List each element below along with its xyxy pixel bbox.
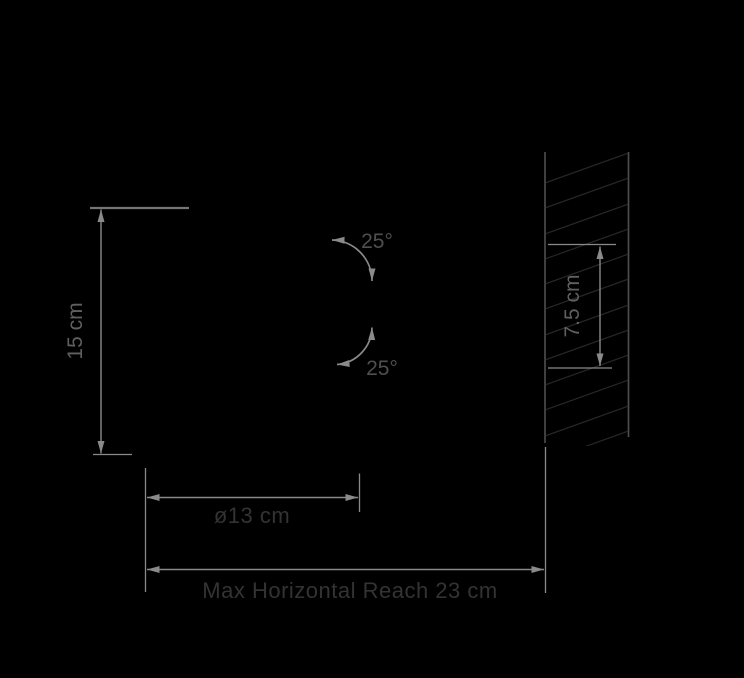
wall-plate-label: 7.5 cm: [561, 274, 584, 337]
wall-plate-dimension: 7.5 cm: [548, 245, 616, 369]
diameter-label: ø13 cm: [214, 503, 290, 528]
max-reach-dimension: Max Horizontal Reach 23 cm: [147, 447, 546, 603]
max-reach-label: Max Horizontal Reach 23 cm: [202, 578, 497, 603]
tilt-up-indicator: 25°: [332, 230, 393, 281]
height-label: 15 cm: [64, 302, 87, 359]
dimension-diagram: 15 cm 25° 25°: [0, 0, 744, 678]
dimension-diagram-canvas: 15 cm 25° 25°: [0, 0, 744, 678]
tilt-down-indicator: 25°: [337, 328, 398, 381]
tilt-up-label: 25°: [361, 230, 393, 253]
diameter-dimension: ø13 cm: [146, 468, 360, 592]
wall-section: [545, 152, 629, 486]
height-dimension: 15 cm: [64, 208, 189, 455]
wall-hatch: [545, 153, 629, 486]
tilt-down-label: 25°: [366, 357, 398, 380]
